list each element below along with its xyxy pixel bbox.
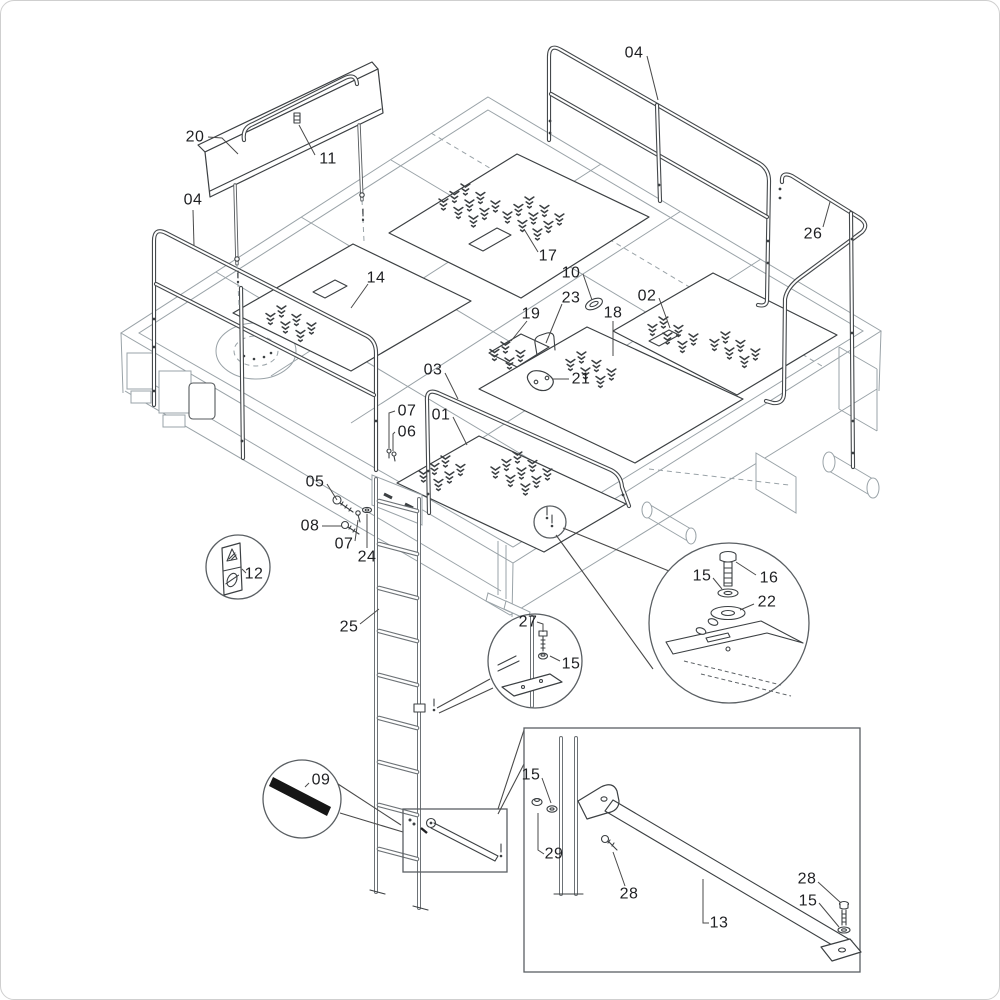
grab-handle-10 <box>584 296 604 312</box>
callout-label-24: 24 <box>358 549 377 566</box>
tread-plate-01 <box>397 436 626 552</box>
sign-board-bolt-11 <box>294 113 300 123</box>
callout-label-06: 06 <box>398 424 417 441</box>
screw-06 <box>392 452 396 461</box>
washer-15-left <box>547 806 557 812</box>
callout-leader-26 <box>823 202 830 227</box>
callout-label-04: 04 <box>184 192 203 209</box>
ladder-bracket-bolts <box>433 699 436 711</box>
callout-label-07: 07 <box>398 403 417 420</box>
washer-22 <box>711 607 745 620</box>
callout-label-22: 22 <box>758 594 777 611</box>
screw-07-upper <box>387 449 391 458</box>
callout-label-15: 15 <box>799 893 818 910</box>
callout-label-17: 17 <box>539 248 558 265</box>
callout-label-23: 23 <box>562 290 581 307</box>
tread-plates <box>233 154 837 552</box>
callout-leader-04 <box>193 210 194 246</box>
callout-label-20: 20 <box>186 129 205 146</box>
callout-label-09: 09 <box>312 772 331 789</box>
callout-label-02: 02 <box>638 288 657 305</box>
callout-label-15: 15 <box>562 656 581 673</box>
callout-label-13: 13 <box>710 915 729 932</box>
callout-label-03: 03 <box>424 362 443 379</box>
callout-leader-04 <box>647 56 658 100</box>
callout-leader-07 <box>355 520 358 541</box>
front-corner-legs <box>486 541 530 620</box>
callout-label-25: 25 <box>340 619 359 636</box>
callout-label-29: 29 <box>545 846 564 863</box>
callout-label-15: 15 <box>693 568 712 585</box>
callout-label-14: 14 <box>367 270 386 287</box>
washer-24 <box>363 507 372 512</box>
tread-plate-14 <box>233 244 471 371</box>
callout-label-11: 11 <box>319 151 337 168</box>
callout-leader-06 <box>393 432 395 451</box>
callout-label-07: 07 <box>335 536 354 553</box>
callout-label-27: 27 <box>519 614 538 631</box>
callout-label-28: 28 <box>798 871 817 888</box>
mount-hardware-circle <box>649 543 809 703</box>
callout-label-01: 01 <box>432 407 451 424</box>
ladder-25 <box>370 475 428 910</box>
callout-leader-01 <box>453 417 467 445</box>
exploded-parts-diagram: 2011040426171023021918142103010706050807… <box>1 1 1000 1000</box>
callout-label-21: 21 <box>572 371 591 388</box>
callout-label-08: 08 <box>301 518 320 535</box>
ladder-bracket-circle <box>437 614 582 713</box>
diagram-page: 2011040426171023021918142103010706050807… <box>0 0 1000 1000</box>
callout-label-16: 16 <box>760 570 779 587</box>
nut-15 <box>539 653 548 659</box>
washer-15-right <box>838 927 850 933</box>
ladder-rod-bracket <box>414 704 425 712</box>
grip-tape-circle <box>263 760 403 838</box>
callout-label-12: 12 <box>245 566 264 583</box>
callout-label-28: 28 <box>620 886 639 903</box>
callout-label-04: 04 <box>625 45 644 62</box>
callout-label-10: 10 <box>562 265 581 282</box>
left-support-blocks <box>127 353 215 427</box>
nut-29 <box>532 799 542 806</box>
callout-label-15: 15 <box>522 767 541 784</box>
callout-leader-07 <box>389 411 395 448</box>
callout-label-26: 26 <box>804 226 823 243</box>
ladder-rungs <box>379 501 417 859</box>
washer-15 <box>718 589 738 597</box>
callout-label-19: 19 <box>522 306 541 323</box>
callout-leader-05 <box>327 484 337 500</box>
callout-label-05: 05 <box>306 474 325 491</box>
support-rod-box <box>524 728 861 972</box>
callout-label-18: 18 <box>604 305 623 322</box>
